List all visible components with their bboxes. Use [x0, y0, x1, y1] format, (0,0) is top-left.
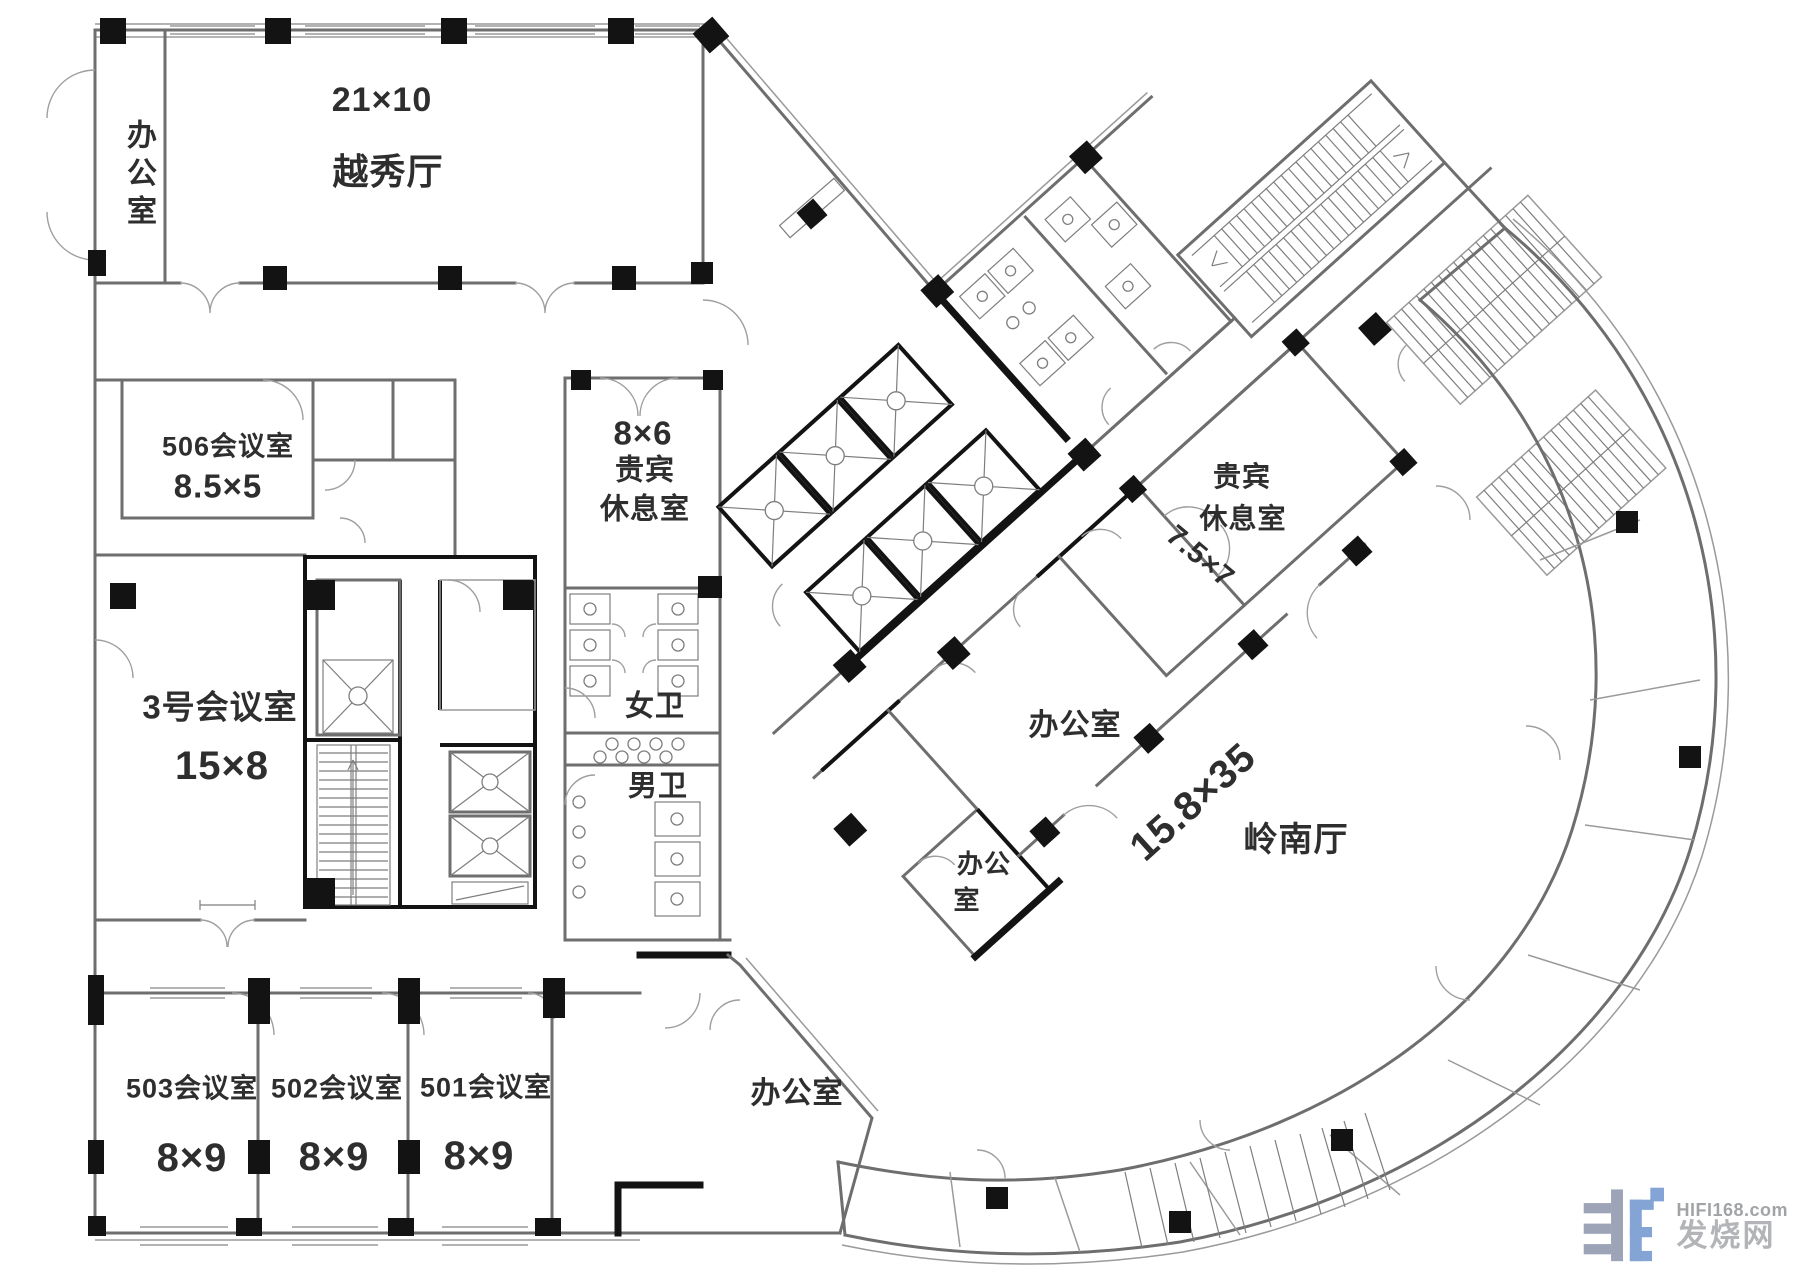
label-yuexiu-dim: 21×10 [332, 83, 433, 117]
elevator-bank [693, 340, 1039, 680]
label-office-top-left: 办公室 [123, 119, 153, 233]
label-vip-west-line1: 贵宾 [615, 457, 675, 486]
label-lingnan-name: 岭南厅 [1244, 823, 1349, 857]
label-office-bottom: 办公室 [751, 1079, 844, 1109]
label-office-mid: 办公室 [1029, 711, 1122, 741]
label-vip-west-dim: 8×6 [614, 417, 673, 450]
label-room503-dim: 8×9 [157, 1138, 228, 1178]
foyer-details [47, 70, 844, 947]
wing-stairs [1350, 195, 1726, 575]
label-room503-name: 503会议室 [126, 1076, 258, 1103]
label-office-small-line2: 室 [953, 887, 980, 913]
wing-toilets [938, 162, 1230, 456]
watermark: HIFI168.com 发烧网 [1580, 1186, 1788, 1268]
label-room502-dim: 8×9 [299, 1137, 370, 1177]
label-room506-name: 506会议室 [162, 434, 294, 461]
bottom-room-row [95, 993, 640, 1228]
hifi168-logo-icon [1580, 1186, 1666, 1268]
wing-room-row [814, 343, 1458, 957]
label-room502-name: 502会议室 [271, 1076, 403, 1103]
exterior-walls [95, 24, 1066, 1240]
window-lines [140, 26, 700, 1245]
watermark-name: 发烧网 [1676, 1220, 1788, 1253]
floor-plan: 办公室 21×10 越秀厅 506会议室 8.5×5 8×6 贵宾 休息室 3号… [0, 0, 1800, 1274]
room3-walls [95, 900, 305, 920]
label-room501-dim: 8×9 [444, 1136, 515, 1176]
room506-and-ante-walls [95, 380, 455, 555]
escalators [1178, 81, 1445, 337]
label-vip-west-line2: 休息室 [600, 496, 690, 525]
ortho-columns [88, 17, 828, 1236]
label-vip-east-line1: 贵宾 [1213, 463, 1271, 491]
label-room3-name: 3号会议室 [142, 691, 297, 724]
label-room501-name: 501会议室 [420, 1075, 552, 1102]
stair-elevator-core [305, 557, 535, 907]
diagonal-wing [604, 0, 1725, 1044]
label-office-small-line1: 办公 [957, 851, 1011, 877]
label-room506-dim: 8.5×5 [174, 470, 263, 503]
label-yuexiu-name: 越秀厅 [332, 154, 443, 190]
label-wc-male: 男卫 [628, 773, 688, 802]
toilet-block [565, 588, 720, 940]
label-room3-dim: 15×8 [175, 746, 269, 786]
label-vip-east-line2: 休息室 [1199, 505, 1286, 533]
label-wc-female: 女卫 [625, 693, 685, 722]
